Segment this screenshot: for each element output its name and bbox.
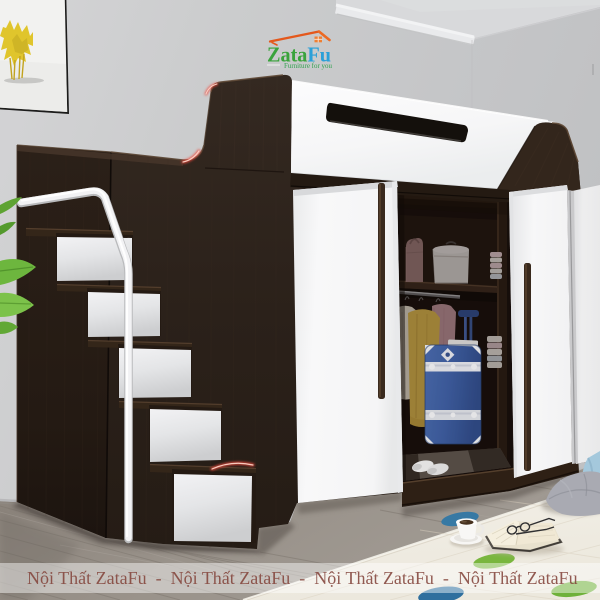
svg-text:Nội Thất ZataFu - Nội Thất Z: Nội Thất ZataFu - Nội Thất ZataFu - Nội … (27, 568, 578, 588)
svg-text:Furniture for you: Furniture for you (284, 63, 333, 70)
